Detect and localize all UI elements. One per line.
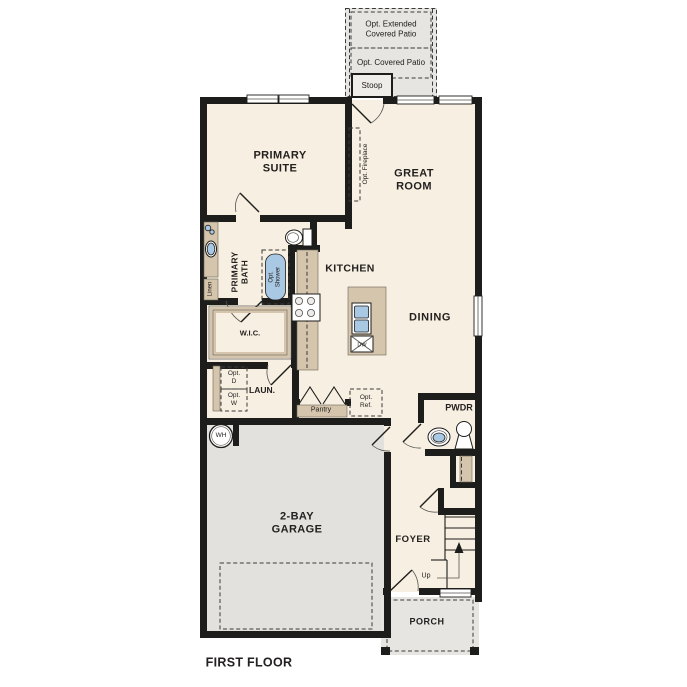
dishwasher-icon — [351, 336, 373, 352]
porch-post — [470, 647, 479, 655]
bath-sink-icon — [206, 241, 217, 257]
garage-floor — [207, 424, 384, 632]
stoop-outline — [352, 74, 392, 97]
stove-icon — [292, 294, 320, 321]
under-stair-closet — [460, 456, 472, 482]
window — [474, 296, 482, 336]
toilet-icon — [286, 229, 313, 246]
floor-plan: Opt. Extended Covered Patio Opt. Covered… — [0, 0, 687, 687]
linen-closet — [204, 279, 218, 300]
porch-post — [381, 647, 390, 655]
pantry-shelf — [297, 405, 347, 417]
window — [247, 95, 278, 103]
water-heater-icon — [210, 425, 233, 448]
island-sink-icon — [352, 303, 371, 334]
window — [397, 96, 434, 104]
patio-area — [345, 8, 437, 97]
toilet-icon — [428, 428, 450, 446]
floor-plan-drawing — [0, 0, 687, 687]
window — [279, 95, 309, 103]
window — [440, 589, 471, 597]
window — [439, 96, 472, 104]
porch-area — [381, 597, 479, 655]
